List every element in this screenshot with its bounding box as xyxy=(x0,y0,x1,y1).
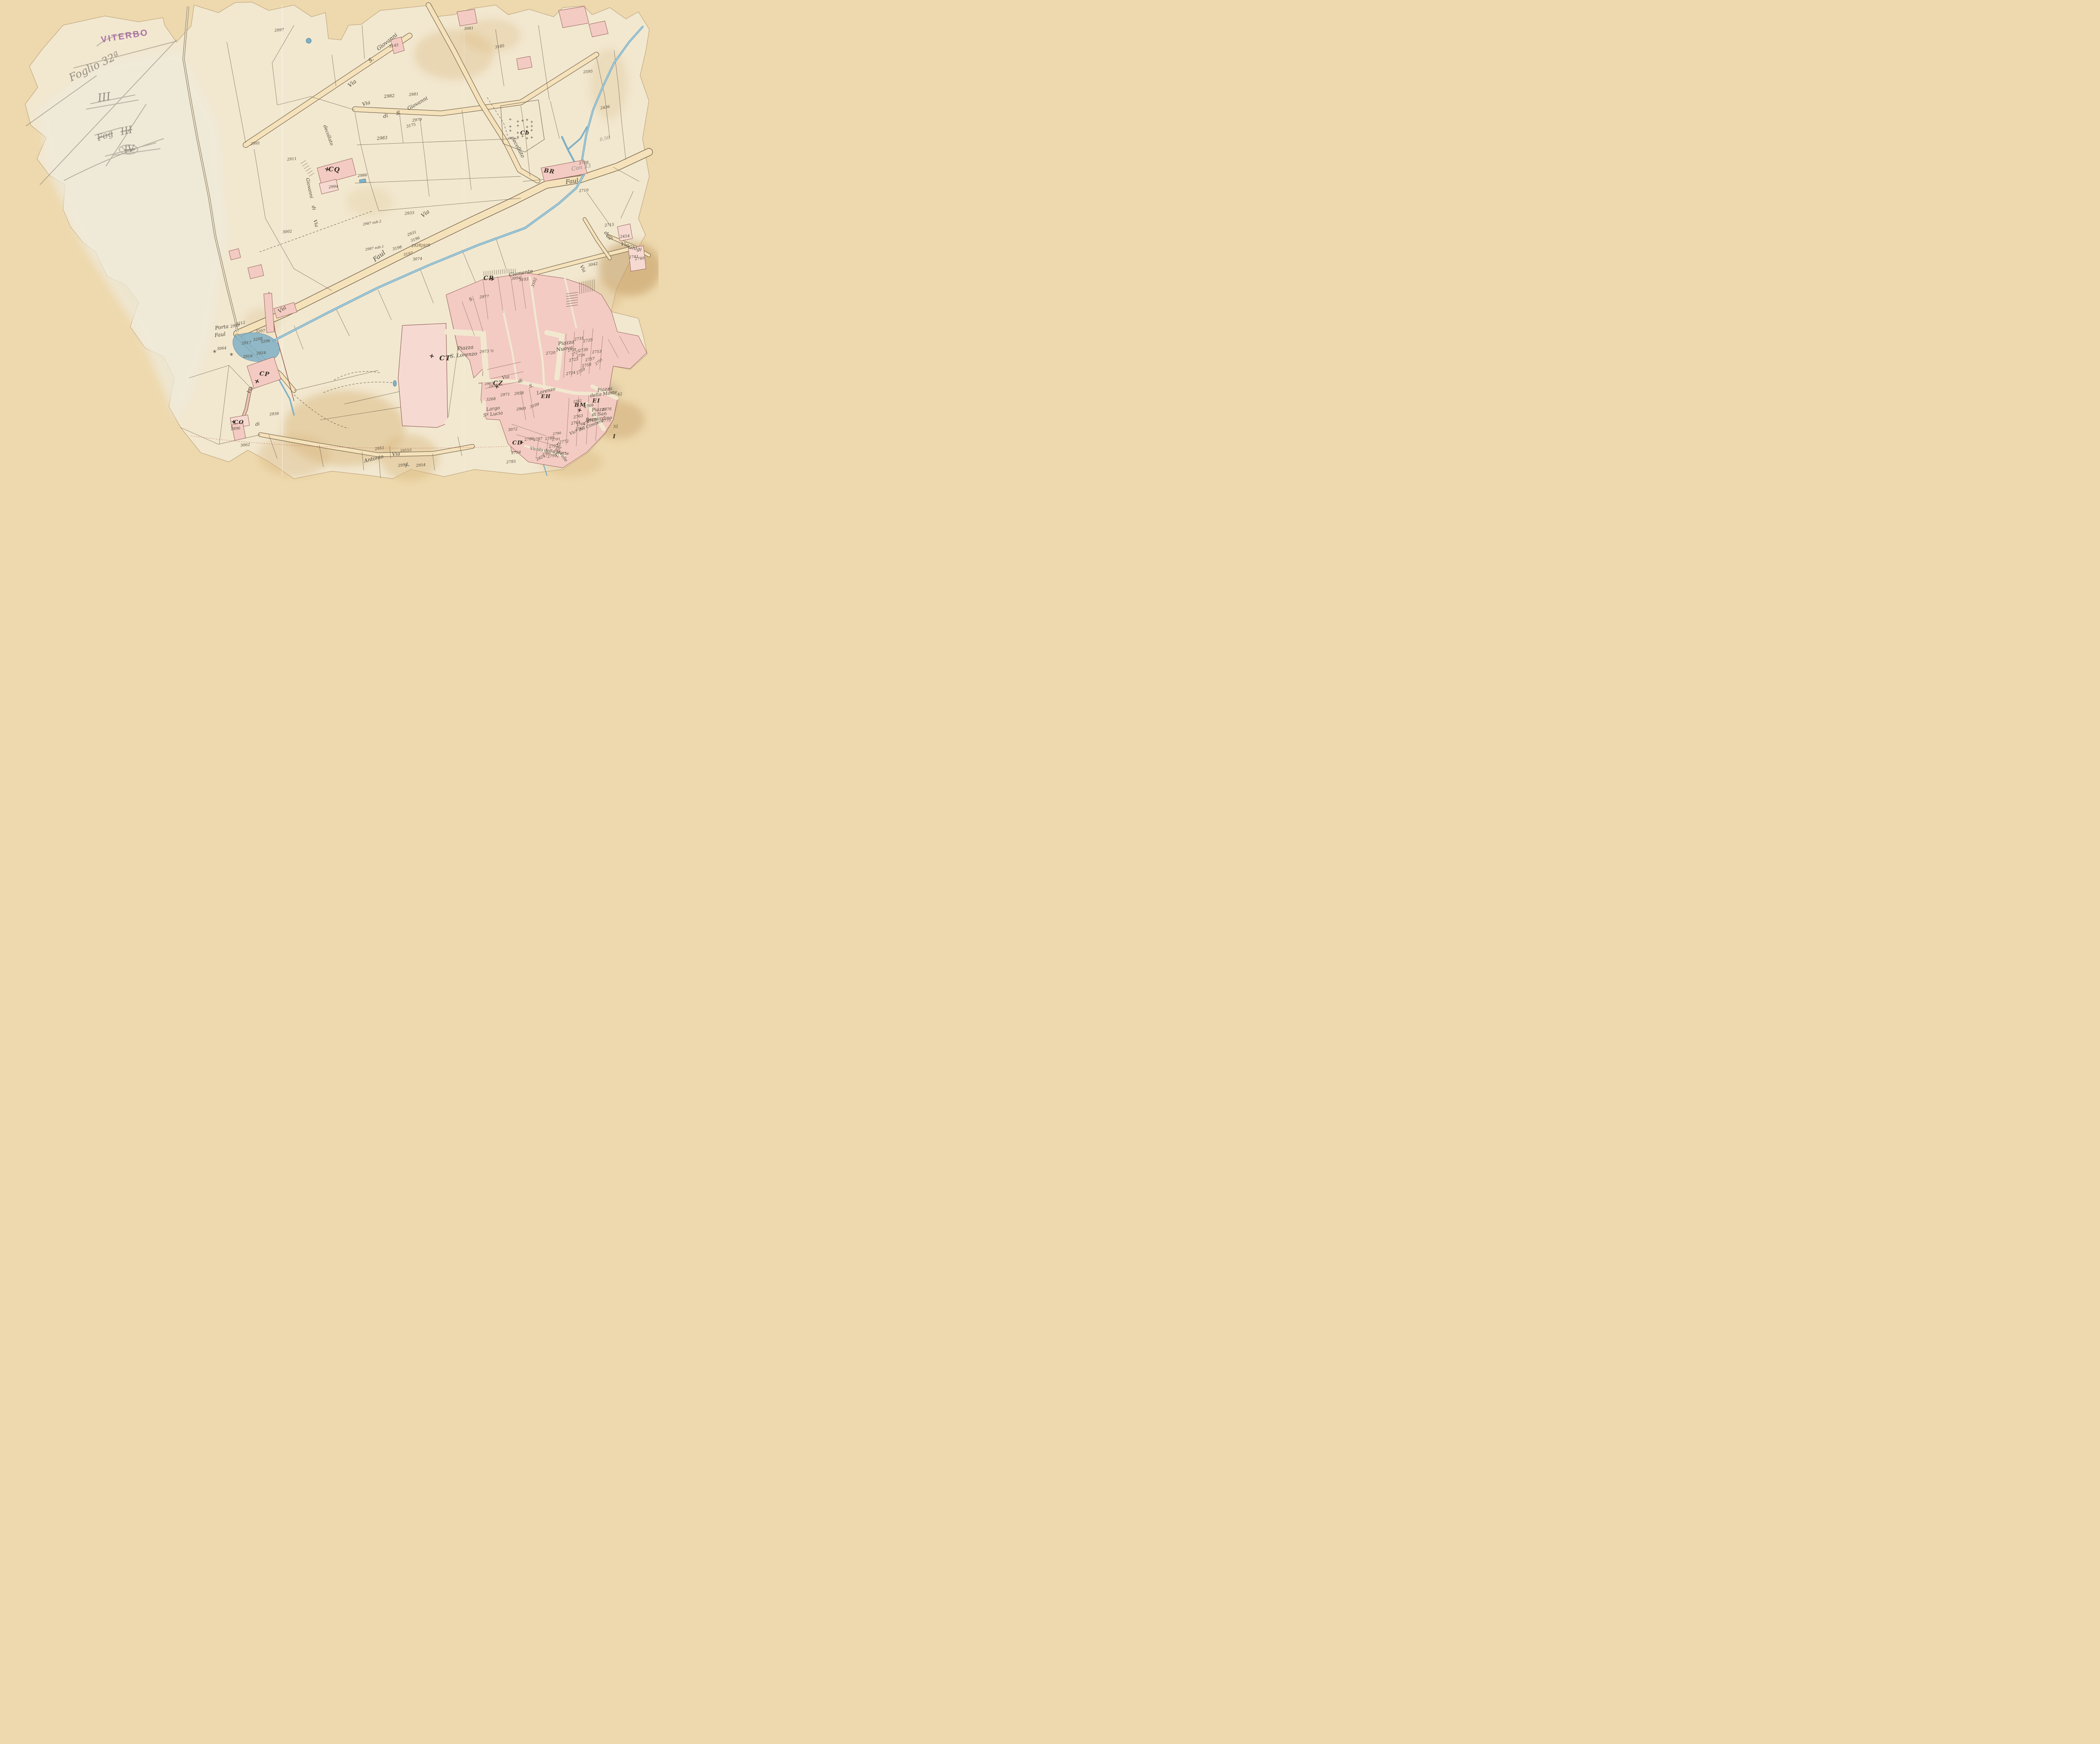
parcel-number: 2724 xyxy=(566,371,576,377)
street-via-s-antonio: Antonio xyxy=(364,454,384,463)
parcel-number: 2918 xyxy=(243,355,253,359)
street-via-ghigi: Ghigi xyxy=(628,244,642,252)
cemetery-cross-icon: + xyxy=(530,128,533,133)
street-giovanni-vertical: Via xyxy=(312,219,319,228)
church-cross-icon: + xyxy=(429,353,435,360)
street-via: Via xyxy=(246,386,255,395)
street-via-di-s-giovanni: di xyxy=(383,113,388,119)
parcel-number: 2924 xyxy=(256,351,266,356)
parcel-number: 2725 xyxy=(569,358,579,363)
cemetery-cross-icon: + xyxy=(508,129,512,133)
cemetery-cross-icon: + xyxy=(530,136,533,140)
street-via-di-s-giovanni: Giovanni xyxy=(407,95,429,111)
cadastral-map-sheet: VITERBOFoglio 32ªIIIFogIIIIVCon 330.50Vi… xyxy=(0,0,659,488)
tree-symbol-icon: * xyxy=(213,350,217,357)
parcel-number: 3064 xyxy=(217,347,227,351)
cemetery-cross-icon: + xyxy=(508,117,512,122)
block-label-EH: EH xyxy=(541,394,551,399)
parcel-number: 2763 xyxy=(573,414,583,420)
block-label-I: I xyxy=(613,434,616,440)
street-s-clemente: S. xyxy=(468,296,475,302)
cemetery-cross-icon: + xyxy=(520,134,524,139)
parcel-number: 3103 xyxy=(519,278,529,283)
parcel-number: 3185 xyxy=(495,45,505,50)
parcel-number: 3042 xyxy=(588,262,598,268)
parcel-number: 2971 xyxy=(500,393,510,398)
church-cross-icon: + xyxy=(577,407,583,414)
label-piazza-s-lorenzo: S. Lorenzo xyxy=(450,351,478,359)
parcel-number: 2715 xyxy=(604,223,614,228)
parcel-number: 2928 xyxy=(411,244,421,249)
parcel-number: 3212 xyxy=(236,321,246,327)
street-via-faul: Via xyxy=(420,209,431,218)
street-via-di-s-giovanni: S. xyxy=(396,110,402,116)
parcel-number: 2951 xyxy=(375,446,385,451)
parcel-number: 2977 xyxy=(479,295,489,300)
parcel-number: 2982 xyxy=(384,94,395,99)
street-via-right: Via xyxy=(579,265,587,273)
parcel-number: 2757 xyxy=(585,357,595,363)
parcel-number: 3102 xyxy=(531,278,538,288)
parcel-number: 2730 xyxy=(578,348,588,353)
parcel-number: 2740 xyxy=(635,257,645,262)
church-cross-icon: + xyxy=(253,377,261,386)
parcel-number: 2929 xyxy=(420,244,430,249)
street-via-s-antonio: Via xyxy=(392,451,401,457)
street-dell: dell' xyxy=(603,230,614,242)
street-via-s-giovanni: Via xyxy=(347,79,358,88)
cemetery-cross-icon: + xyxy=(516,135,520,139)
block-label-CT: CT xyxy=(439,355,451,362)
parcel-number: 3145 xyxy=(389,44,399,49)
parcel-number: 2753 xyxy=(592,350,602,355)
parcel-number: 3074 xyxy=(412,257,423,262)
parcel-number: 2931 xyxy=(407,231,417,237)
pencil-numeral-struck: IV xyxy=(123,144,135,155)
parcel-number: 2759 xyxy=(576,367,586,375)
street-via-di-s-lorenzo: Via xyxy=(501,374,510,380)
parcel-number: 2981 xyxy=(409,93,419,97)
cemetery-cross-icon: + xyxy=(525,136,529,141)
parcel-number: 3206 xyxy=(260,339,270,344)
sheet-number-note: Foglio 32ª xyxy=(67,50,121,83)
parcel-number: 2790 xyxy=(552,432,561,436)
parcel-number: 2787 xyxy=(533,437,543,442)
block-label-EI: EI xyxy=(593,399,601,404)
street-via-faul: Via xyxy=(277,305,288,315)
parcel-number: 2911 xyxy=(287,157,297,162)
pencil-note: 0.50 xyxy=(599,135,610,142)
pencil-numeral-struck: III xyxy=(120,124,134,136)
parcel-number: 2986 xyxy=(357,174,367,178)
street-via-faul: Faul xyxy=(372,249,386,263)
parcel-number: 3198 xyxy=(392,246,402,252)
street-via-di-s-lorenzo: di xyxy=(518,378,523,383)
parcel-number: 3109 xyxy=(530,403,540,409)
label-porta-faul: Faul xyxy=(214,331,226,338)
street-giovanni-vertical: Giovanni xyxy=(305,178,314,199)
street-via-di-s-lorenzo: S. xyxy=(529,383,534,388)
parcel-number: 2973 ½ xyxy=(479,349,494,354)
church-cross-icon: + xyxy=(519,440,525,446)
street-di: di xyxy=(255,422,260,427)
parcel-number: 2917 xyxy=(241,341,252,346)
parcel-number: 2772 xyxy=(559,440,569,445)
parcel-number: 2729 xyxy=(583,338,593,344)
parcel-number: 3196 xyxy=(410,236,421,243)
parcel-number: 2436 xyxy=(600,105,610,111)
church-cross-icon: + xyxy=(489,275,496,283)
parcel-number: 2933 xyxy=(404,212,415,216)
parcel-number: 3207 xyxy=(255,330,265,334)
cemetery-cross-icon: + xyxy=(525,118,529,122)
parcel-number: 2784 xyxy=(511,451,521,456)
parcel-number: 3268 xyxy=(486,398,496,402)
parcel-number: 3197 xyxy=(403,252,413,257)
street-via-s-giovanni: Giovanni xyxy=(376,32,399,52)
parcel-number: 2776 xyxy=(602,408,612,412)
parcel-number: 2936 xyxy=(269,412,279,417)
tree-symbol-icon: * xyxy=(230,353,234,360)
parcel-number: 2987 sub.2 xyxy=(362,220,382,226)
street-decollato: decollato xyxy=(323,124,334,146)
pencil-numeral: III xyxy=(97,91,111,104)
parcel-number: 2991 xyxy=(250,142,260,147)
label-largo-s-lucia: Sª Lucia xyxy=(483,410,503,417)
parcel-number: 2983 xyxy=(377,136,388,141)
parcel-number: 32 xyxy=(613,425,618,429)
block-label-BR: BR xyxy=(543,168,555,175)
parcel-number: 2795 xyxy=(547,454,557,459)
parcel-number: 2958 xyxy=(514,392,524,396)
cemetery-cross-icon: + xyxy=(516,131,520,135)
parcel-number: 2954 xyxy=(416,464,426,468)
parcel-number: 2785 xyxy=(506,460,516,465)
cemetery-cross-icon: + xyxy=(516,123,520,128)
pencil-note-struck: Fog xyxy=(96,129,114,142)
parcel-number: 2979 xyxy=(412,118,422,123)
parcel-number: 3081 xyxy=(464,27,474,31)
map-labels-layer: VITERBOFoglio 32ªIIIFogIIIIVCon 330.50Vi… xyxy=(0,0,659,488)
street-via-di-s-giovanni: Via xyxy=(362,100,371,107)
parcel-number: 2595 xyxy=(583,70,593,75)
parcel-number: 2710 xyxy=(579,189,589,194)
parcel-number: 2454 xyxy=(620,235,630,239)
cemetery-cross-icon: + xyxy=(508,136,512,140)
parcel-number: 2755 xyxy=(595,358,604,366)
street-via-s-giovanni: S. xyxy=(367,56,375,64)
parcel-number: 2953/1 xyxy=(400,448,412,453)
label-piazza-s-lorenzo: Piazza xyxy=(457,344,474,351)
street-giovanni-vertical: di xyxy=(311,205,316,210)
parcel-number: 2896 xyxy=(231,427,241,432)
label-porta-faul: Porta xyxy=(215,324,229,330)
parcel-number: 3072 xyxy=(508,428,518,433)
street-faul: Faul xyxy=(565,178,579,185)
parcel-number: 2960 xyxy=(516,407,526,412)
block-label-CP: CP xyxy=(259,371,270,378)
parcel-number: 2720 xyxy=(546,351,556,356)
parcel-number: 3175 xyxy=(406,123,416,129)
parcel-number: 2997 xyxy=(274,29,284,33)
parcel-number: 42 xyxy=(617,393,622,397)
parcel-number: 2824 xyxy=(536,454,546,462)
parcel-number: 3002 xyxy=(282,230,292,235)
parcel-number: 3062 xyxy=(240,443,250,448)
cemetery-cross-icon: + xyxy=(520,118,524,123)
church-cross-icon: + xyxy=(231,419,236,425)
parcel-number: 2775 xyxy=(601,419,611,424)
label-piazza-della-morte: della Morte xyxy=(590,390,617,398)
parcel-number: 2994 xyxy=(328,185,339,190)
viterbo-stamp: VITERBO xyxy=(100,28,149,45)
